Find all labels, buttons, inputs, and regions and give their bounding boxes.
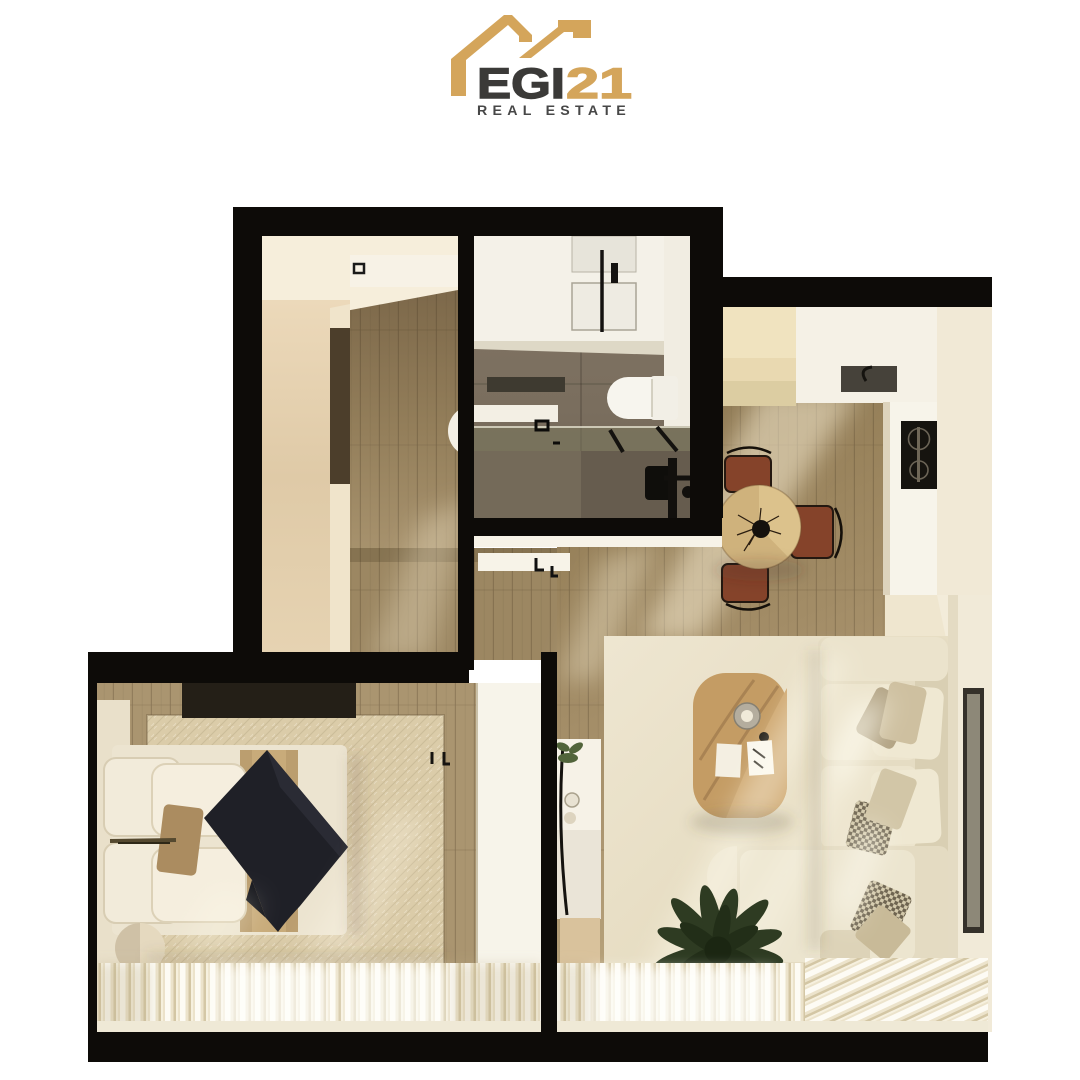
svg-text:21: 21 <box>566 60 632 108</box>
svg-text:EGI: EGI <box>477 60 565 108</box>
svg-text:REAL ESTATE: REAL ESTATE <box>477 103 631 118</box>
